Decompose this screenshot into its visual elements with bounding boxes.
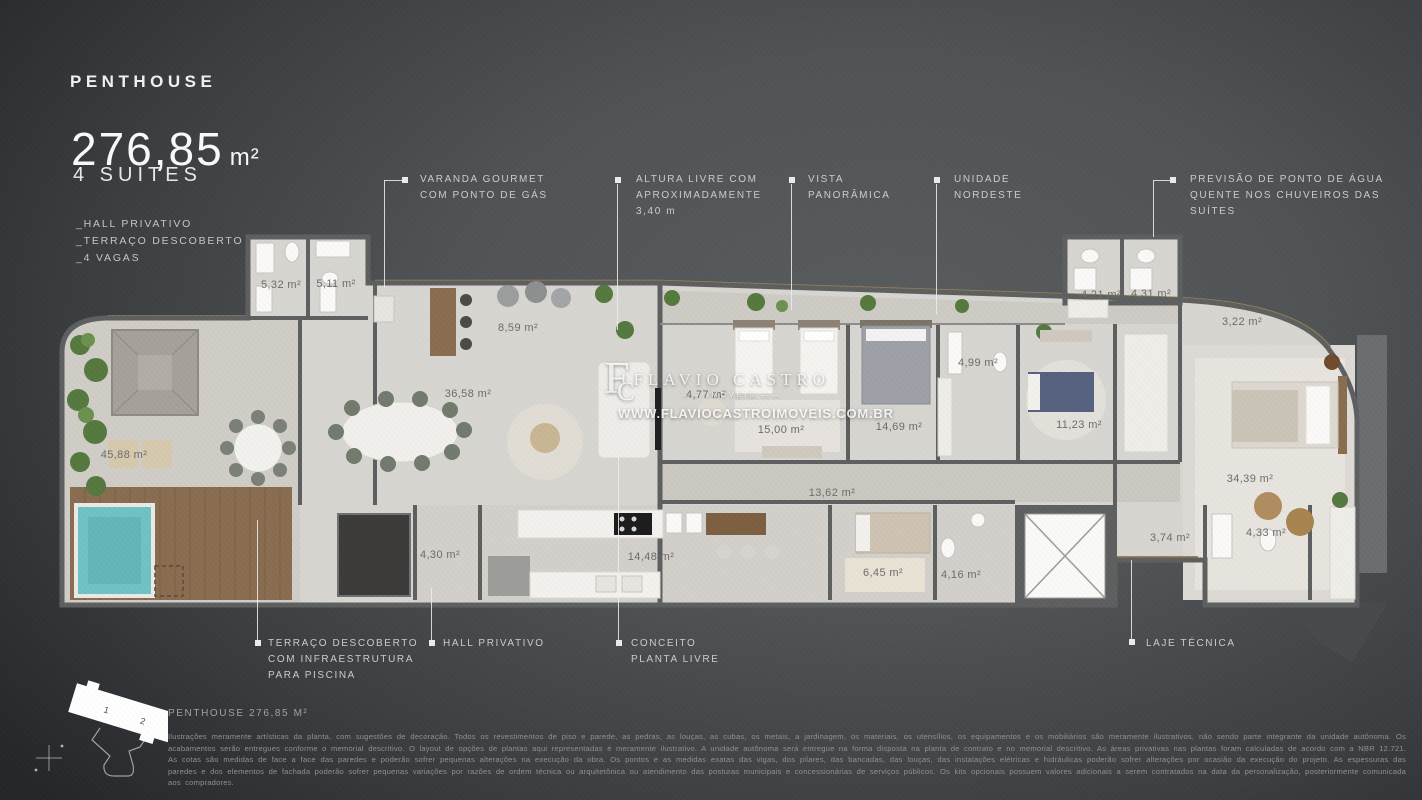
footer-caption: PENTHOUSE 276,85 M² (168, 708, 308, 719)
leader-line (791, 184, 792, 310)
penthouse-floorplan-page: 5,32 m² 5,11 m² 8,59 m² 45,88 m² 36,58 m… (0, 0, 1422, 800)
total-area-unit: m² (230, 144, 260, 171)
footer-disclaimer: Ilustrações meramente artísticas da plan… (168, 731, 1406, 789)
leader-line (431, 588, 432, 640)
callout-line: 3,40 m (636, 204, 762, 220)
leader-line (384, 180, 385, 288)
room-area-label: 4,21 m² (1081, 289, 1121, 301)
callout-line: APROXIMADAMENTE (636, 188, 762, 204)
leader-line (617, 184, 618, 330)
callout-laje-tecnica: LAJE TÉCNICA (1146, 636, 1236, 652)
leader-line (1153, 180, 1154, 237)
room-area-label: 3,74 m² (1150, 532, 1190, 544)
callout-vista-panoramica: VISTA PANORÂMICA (808, 172, 891, 204)
page-title: PENTHOUSE (70, 72, 216, 92)
floorplan-drawing: 5,32 m² 5,11 m² 8,59 m² 45,88 m² 36,58 m… (0, 0, 1422, 800)
room-area-label: 14,48 m² (628, 551, 675, 563)
callout-line: QUENTE NOS CHUVEIROS DAS (1190, 188, 1384, 204)
callout-line: NORDESTE (954, 188, 1022, 204)
callout-line: HALL PRIVATIVO (443, 636, 545, 652)
watermark-name: FLAVIO CASTRO (634, 370, 830, 390)
keyplan: 1 2 (28, 666, 168, 778)
room-area-label: 34,39 m² (1227, 473, 1274, 485)
watermark-url: WWW.FLAVIOCASTROIMOVEIS.COM.BR (618, 406, 894, 421)
callout-line: PLANTA LIVRE (631, 652, 720, 668)
room-area-label: 13,62 m² (809, 487, 856, 499)
callout-line: PREVISÃO DE PONTO DE ÁGUA (1190, 172, 1384, 188)
callout-altura-livre: ALTURA LIVRE COM APROXIMADAMENTE 3,40 m (636, 172, 762, 220)
callout-marker (789, 177, 795, 183)
callout-marker (255, 640, 261, 646)
leader-line (1131, 560, 1132, 639)
callout-line: SUÍTES (1190, 204, 1384, 220)
room-area-label: 15,00 m² (758, 424, 805, 436)
callout-line: LAJE TÉCNICA (1146, 636, 1236, 652)
room-area-label: 11,23 m² (1056, 419, 1102, 431)
room-area-label: 45,88 m² (101, 449, 148, 461)
room-area-label: 4,16 m² (941, 569, 981, 581)
leader-line (1153, 180, 1170, 181)
room-area-label: 8,59 m² (498, 322, 538, 334)
watermark-text: FLAVIO CASTRO IMÓVEIS (634, 358, 830, 399)
callout-line: COM INFRAESTRUTURA (268, 652, 418, 668)
leader-line (618, 455, 619, 640)
room-area-label: 14,69 m² (876, 421, 923, 433)
room-area-label: 5,32 m² (261, 279, 301, 291)
callout-conceito-planta-livre: CONCEITO PLANTA LIVRE (631, 636, 720, 668)
suites-subtitle: 4 SUÍTES (73, 164, 202, 187)
room-area-label: 5,11 m² (316, 278, 355, 290)
callout-line: PANORÂMICA (808, 188, 891, 204)
callout-line: CONCEITO (631, 636, 720, 652)
callout-line: PARA PISCINA (268, 668, 418, 684)
room-area-label: 6,45 m² (863, 567, 903, 579)
room-area-label: 4,33 m² (1246, 527, 1286, 539)
watermark-monogram: F C (604, 358, 630, 398)
callout-line: TERRAÇO DESCOBERTO (268, 636, 418, 652)
room-area-label: 4,31 m² (1131, 288, 1171, 300)
room-area-label: 36,58 m² (445, 388, 492, 400)
callout-line: UNIDADE (954, 172, 1022, 188)
watermark: F C FLAVIO CASTRO IMÓVEIS WWW.FLAVIOCAST… (604, 358, 819, 399)
callout-marker (402, 177, 408, 183)
compass-icon (35, 745, 63, 771)
callout-previsao-agua-quente: PREVISÃO DE PONTO DE ÁGUA QUENTE NOS CHU… (1190, 172, 1384, 220)
callout-unidade-nordeste: UNIDADE NORDESTE (954, 172, 1022, 204)
room-area-label: 3,22 m² (1222, 316, 1262, 328)
watermark-division: IMÓVEIS (634, 392, 830, 399)
leader-line (936, 184, 937, 314)
callout-marker (934, 177, 940, 183)
callout-line: ALTURA LIVRE COM (636, 172, 762, 188)
room-area-label: 4,99 m² (958, 357, 998, 369)
callout-marker (615, 177, 621, 183)
feature-item: _4 VAGAS (76, 250, 243, 267)
room-area-label: 4,30 m² (420, 549, 460, 561)
callout-marker (1170, 177, 1176, 183)
callout-line: COM PONTO DE GÁS (420, 188, 548, 204)
callout-marker (429, 640, 435, 646)
leader-line (384, 180, 402, 181)
callout-marker (616, 640, 622, 646)
feature-list: _HALL PRIVATIVO _TERRAÇO DESCOBERTO _4 V… (76, 216, 243, 267)
keyplan-outline (92, 728, 146, 776)
callout-varanda-gourmet: VARANDA GOURMET COM PONTO DE GÁS (420, 172, 548, 204)
feature-item: _HALL PRIVATIVO (76, 216, 243, 233)
callout-terraco-descoberto: TERRAÇO DESCOBERTO COM INFRAESTRUTURA PA… (268, 636, 418, 684)
callout-line: VISTA (808, 172, 891, 188)
callout-marker (1129, 639, 1135, 645)
leader-line (257, 520, 258, 640)
feature-item: _TERRAÇO DESCOBERTO (76, 233, 243, 250)
callout-line: VARANDA GOURMET (420, 172, 548, 188)
callout-hall-privativo: HALL PRIVATIVO (443, 636, 545, 652)
